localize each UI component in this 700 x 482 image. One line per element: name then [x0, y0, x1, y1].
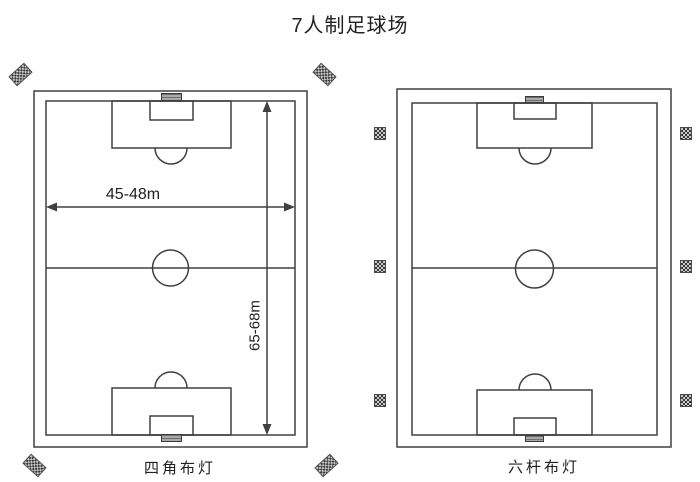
floodlight-icon — [680, 127, 692, 140]
right-bottom-penalty-box — [477, 390, 592, 435]
left-bottom-penalty-arc — [155, 372, 187, 388]
goal-icon — [161, 434, 182, 442]
pitch-lighting-diagram: 7人制足球场 45-48m 65-68m 四角布灯 六杆布灯 — [0, 0, 700, 482]
goal-icon — [161, 93, 182, 101]
length-dimension-label: 65-68m — [247, 295, 264, 357]
floodlight-icon — [374, 260, 386, 273]
right-field-caption: 六杆布灯 — [508, 456, 580, 477]
right-top-penalty-box — [477, 103, 592, 148]
right-center-circle — [516, 250, 554, 288]
left-bottom-goal-box — [150, 416, 193, 435]
right-touchline — [412, 103, 657, 435]
left-outer-boundary — [34, 91, 307, 447]
length-arrowhead-bottom — [263, 424, 272, 435]
left-top-goal-box — [150, 101, 193, 120]
right-top-penalty-arc — [519, 148, 551, 164]
width-arrowhead-left — [46, 203, 57, 212]
goal-icon — [525, 435, 544, 442]
left-bottom-penalty-box — [112, 388, 231, 435]
floodlight-icon — [680, 260, 692, 273]
left-field-drawing — [34, 91, 307, 447]
floodlight-icon — [374, 394, 386, 407]
left-field-caption: 四角布灯 — [144, 457, 216, 478]
length-arrowhead-top — [263, 101, 272, 112]
goal-icon — [525, 96, 544, 103]
floodlight-icon — [680, 394, 692, 407]
width-arrowhead-right — [284, 203, 295, 212]
left-top-penalty-box — [112, 101, 231, 148]
right-bottom-goal-box — [514, 418, 556, 435]
right-bottom-penalty-arc — [519, 374, 551, 390]
left-top-penalty-arc — [155, 148, 187, 164]
width-dimension-label: 45-48m — [100, 186, 166, 204]
floodlight-icon — [374, 127, 386, 140]
right-field-drawing — [397, 89, 671, 447]
page-title: 7人制足球场 — [0, 9, 700, 38]
field-linework — [0, 0, 700, 482]
right-top-goal-box — [514, 103, 556, 119]
